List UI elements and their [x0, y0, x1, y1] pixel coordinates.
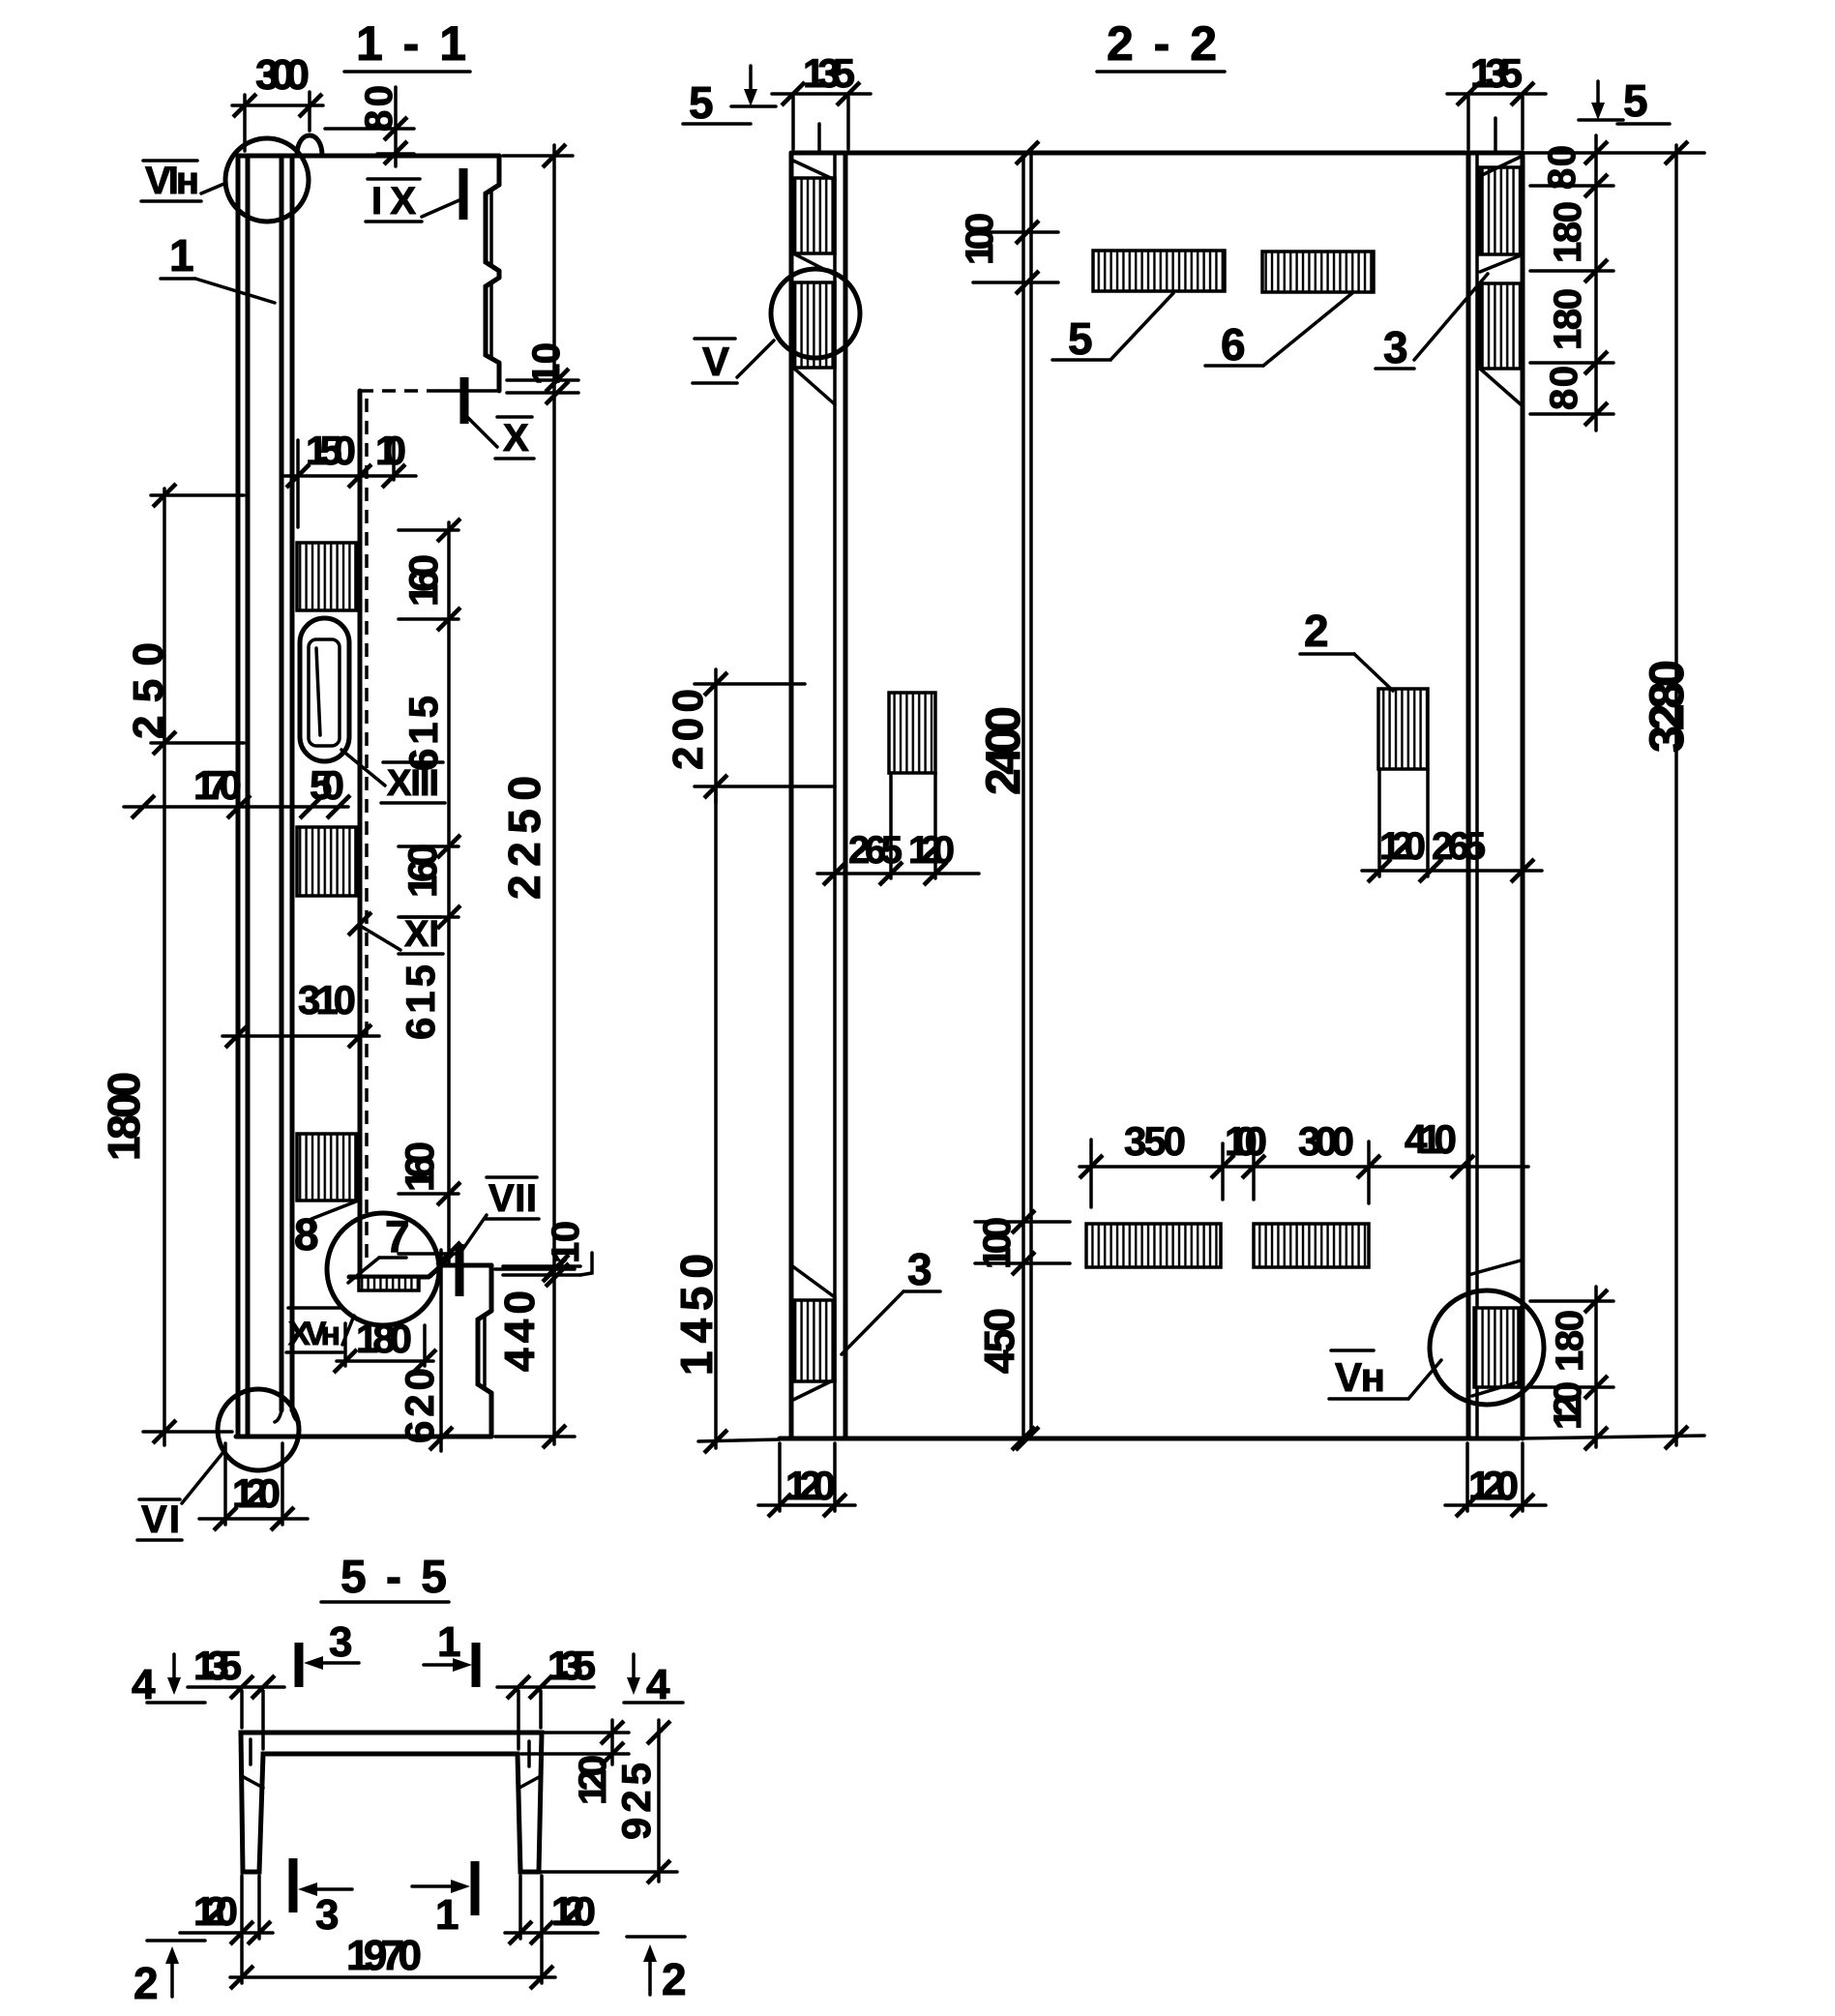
svg-text:120: 120	[785, 1463, 836, 1508]
svg-text:2: 2	[133, 1958, 159, 2008]
svg-text:VIн: VIн	[145, 160, 199, 202]
svg-text:5: 5	[1068, 313, 1093, 364]
svg-text:160: 160	[397, 1141, 442, 1192]
svg-text:7: 7	[385, 1211, 410, 1261]
svg-text:V: V	[702, 339, 729, 384]
svg-text:120: 120	[232, 1470, 281, 1516]
svg-text:925: 925	[613, 1763, 659, 1840]
svg-text:310: 310	[298, 977, 356, 1023]
svg-text:3: 3	[1383, 322, 1408, 372]
svg-text:XVн: XVн	[288, 1316, 340, 1352]
svg-text:410: 410	[1405, 1116, 1457, 1162]
svg-text:170: 170	[193, 762, 242, 808]
svg-text:135: 135	[1470, 50, 1523, 96]
svg-text:120: 120	[193, 1888, 238, 1934]
svg-text:160: 160	[400, 554, 446, 607]
svg-text:2 - 2: 2 - 2	[1107, 16, 1217, 71]
svg-text:180: 180	[1547, 288, 1589, 350]
svg-text:Vн: Vн	[1335, 1354, 1385, 1400]
svg-text:5: 5	[689, 77, 714, 128]
svg-text:3: 3	[907, 1244, 932, 1294]
svg-text:100: 100	[976, 1217, 1019, 1269]
svg-text:100: 100	[959, 213, 1001, 265]
svg-text:3: 3	[329, 1618, 352, 1666]
svg-text:2400: 2400	[976, 706, 1030, 795]
svg-text:1: 1	[437, 1618, 460, 1666]
svg-text:IX: IX	[371, 180, 416, 222]
svg-text:615: 615	[400, 696, 446, 771]
svg-text:620: 620	[397, 1368, 442, 1443]
svg-text:300: 300	[1298, 1118, 1354, 1164]
svg-text:1 - 1: 1 - 1	[356, 16, 466, 71]
svg-text:150: 150	[306, 428, 356, 473]
svg-text:XIII: XIII	[387, 763, 439, 804]
svg-text:XI: XI	[404, 914, 439, 955]
svg-text:300: 300	[255, 51, 310, 99]
svg-text:615: 615	[398, 964, 443, 1040]
svg-text:5: 5	[1623, 75, 1648, 126]
svg-text:265: 265	[848, 829, 903, 872]
svg-text:350: 350	[1124, 1118, 1186, 1164]
svg-text:1: 1	[169, 230, 194, 281]
svg-text:X: X	[503, 417, 529, 460]
svg-text:160: 160	[400, 844, 445, 898]
svg-text:1970: 1970	[346, 1932, 422, 1979]
svg-text:135: 135	[548, 1643, 596, 1688]
svg-text:VII: VII	[488, 1177, 537, 1220]
svg-text:1800: 1800	[99, 1072, 149, 1161]
svg-text:3: 3	[315, 1891, 339, 1939]
svg-text:180: 180	[1549, 1310, 1591, 1372]
svg-text:2: 2	[1304, 606, 1329, 656]
svg-text:VI: VI	[141, 1498, 180, 1541]
svg-text:135: 135	[193, 1643, 242, 1688]
svg-text:2: 2	[662, 1954, 687, 2004]
svg-text:440: 440	[496, 1290, 544, 1372]
svg-text:250: 250	[125, 642, 172, 739]
svg-text:120: 120	[1547, 1381, 1589, 1430]
svg-text:200: 200	[665, 689, 712, 770]
svg-text:3280: 3280	[1640, 660, 1694, 753]
svg-text:120: 120	[1468, 1463, 1519, 1508]
svg-text:5 - 5: 5 - 5	[340, 1552, 447, 1603]
svg-text:120: 120	[908, 829, 955, 872]
svg-text:6: 6	[1221, 319, 1246, 370]
svg-text:180: 180	[1547, 201, 1589, 263]
svg-text:120: 120	[572, 1755, 614, 1805]
svg-text:80: 80	[1541, 145, 1583, 190]
svg-text:450: 450	[976, 1308, 1023, 1374]
svg-text:1: 1	[435, 1891, 459, 1939]
svg-text:135: 135	[803, 50, 855, 96]
svg-text:80: 80	[1543, 366, 1585, 410]
svg-text:120: 120	[551, 1888, 596, 1934]
